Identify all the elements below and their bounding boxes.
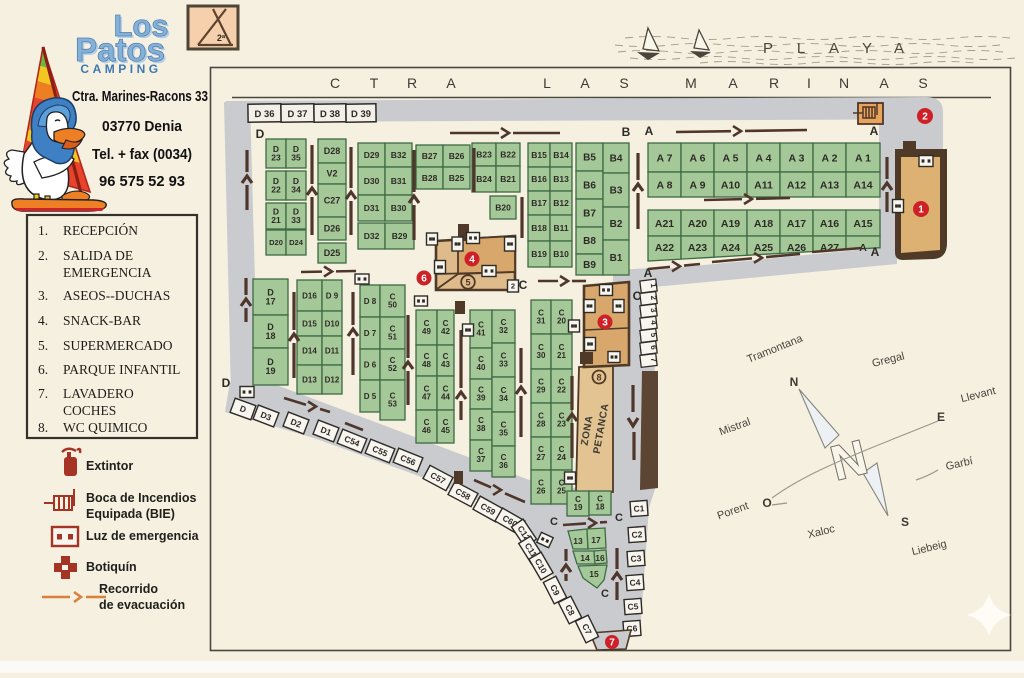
svg-text:B26: B26 (449, 151, 465, 161)
svg-text:34: 34 (499, 394, 508, 403)
svg-text:96 575 52 93: 96 575 52 93 (99, 173, 185, 190)
svg-text:B13: B13 (553, 174, 569, 184)
svg-text:33: 33 (291, 215, 301, 225)
svg-text:A21: A21 (655, 218, 674, 230)
svg-text:D30: D30 (364, 176, 380, 186)
svg-text:N: N (790, 375, 799, 389)
svg-text:A: A (829, 40, 839, 57)
svg-text:26: 26 (537, 487, 546, 496)
svg-text:A26: A26 (787, 242, 806, 254)
svg-text:SNACK-BAR: SNACK-BAR (63, 313, 141, 328)
svg-text:A24: A24 (721, 242, 740, 254)
svg-text:B20: B20 (495, 203, 511, 213)
svg-text:52: 52 (388, 364, 397, 373)
svg-text:C: C (519, 278, 528, 292)
svg-text:A22: A22 (655, 242, 674, 254)
svg-text:Botiquín: Botiquín (86, 560, 137, 574)
svg-text:36: 36 (499, 461, 508, 470)
svg-text:CAMPING: CAMPING (80, 62, 161, 76)
svg-text:D 37: D 37 (287, 109, 307, 120)
svg-text:A17: A17 (787, 218, 806, 230)
svg-text:15: 15 (589, 569, 599, 579)
svg-text:B1: B1 (610, 253, 623, 264)
svg-text:B7: B7 (583, 209, 596, 220)
svg-text:43: 43 (441, 360, 450, 369)
svg-text:B: B (622, 125, 631, 139)
svg-text:A 4: A 4 (756, 152, 772, 164)
svg-text:D31: D31 (364, 203, 380, 213)
svg-text:A: A (728, 75, 738, 91)
svg-text:COCHES: COCHES (63, 403, 116, 418)
svg-text:25: 25 (557, 487, 566, 496)
svg-text:20: 20 (557, 317, 566, 326)
svg-text:17: 17 (265, 296, 275, 306)
svg-text:B28: B28 (422, 173, 438, 183)
svg-text:D16: D16 (302, 291, 317, 300)
svg-text:51: 51 (388, 333, 397, 342)
svg-text:D25: D25 (324, 248, 341, 258)
svg-text:A 6: A 6 (690, 152, 706, 164)
svg-text:D32: D32 (364, 231, 380, 241)
svg-text:D10: D10 (325, 319, 340, 328)
svg-text:D24: D24 (289, 238, 304, 247)
svg-text:Boca de Incendios: Boca de Incendios (86, 491, 196, 505)
svg-text:D 6: D 6 (364, 360, 377, 369)
svg-text:B12: B12 (553, 198, 569, 208)
svg-text:N: N (839, 75, 849, 91)
svg-text:D 36: D 36 (254, 109, 274, 120)
svg-text:Tel. + fax (0034): Tel. + fax (0034) (92, 146, 192, 163)
svg-text:32: 32 (499, 326, 508, 335)
svg-text:30: 30 (537, 351, 546, 360)
svg-text:35: 35 (291, 152, 301, 162)
svg-text:A11: A11 (754, 179, 773, 191)
svg-text:D12: D12 (325, 375, 340, 384)
svg-text:45: 45 (441, 426, 450, 435)
svg-text:D26: D26 (324, 224, 341, 234)
svg-text:D15: D15 (302, 319, 317, 328)
svg-text:A20: A20 (688, 218, 707, 230)
svg-text:2.: 2. (38, 248, 48, 263)
svg-text:B15: B15 (531, 150, 547, 160)
svg-text:Equipada (BIE): Equipada (BIE) (86, 507, 175, 521)
svg-text:6.: 6. (38, 362, 48, 377)
svg-text:S: S (901, 515, 909, 529)
svg-text:2: 2 (511, 282, 515, 291)
svg-text:A12: A12 (787, 179, 806, 191)
svg-text:A25: A25 (754, 242, 773, 254)
svg-text:L: L (797, 40, 805, 57)
svg-text:B10: B10 (553, 249, 569, 259)
svg-text:C27: C27 (324, 196, 341, 206)
svg-text:40: 40 (477, 363, 486, 372)
svg-text:35: 35 (499, 429, 508, 438)
svg-text:C1: C1 (633, 503, 645, 514)
svg-text:EMERGENCIA: EMERGENCIA (63, 265, 152, 280)
svg-text:44: 44 (441, 393, 450, 402)
svg-text:de evacuación: de evacuación (99, 598, 185, 612)
svg-text:C: C (633, 289, 642, 303)
svg-text:B8: B8 (583, 236, 596, 247)
svg-text:33: 33 (499, 360, 508, 369)
svg-text:2ª: 2ª (217, 33, 226, 43)
svg-text:39: 39 (477, 394, 486, 403)
svg-text:6: 6 (421, 273, 427, 284)
svg-text:B16: B16 (531, 174, 547, 184)
svg-text:18: 18 (596, 503, 605, 512)
svg-text:C: C (601, 588, 609, 600)
svg-text:LAVADERO: LAVADERO (63, 386, 134, 401)
svg-text:D14: D14 (302, 346, 317, 355)
svg-text:S: S (619, 75, 628, 91)
svg-text:A18: A18 (754, 218, 773, 230)
svg-text:B9: B9 (583, 260, 596, 271)
svg-text:A14: A14 (853, 179, 872, 191)
svg-text:D13: D13 (302, 375, 317, 384)
svg-text:D 7: D 7 (364, 329, 377, 338)
svg-text:17: 17 (591, 535, 601, 545)
svg-text:A13: A13 (820, 179, 839, 191)
svg-text:B19: B19 (531, 249, 547, 259)
svg-text:22: 22 (557, 386, 566, 395)
svg-text:A: A (894, 40, 904, 57)
svg-text:5: 5 (465, 278, 470, 288)
svg-text:A: A (580, 75, 590, 91)
svg-text:Luz de emergencia: Luz de emergencia (86, 529, 200, 543)
svg-text:4.: 4. (38, 313, 48, 328)
svg-text:C4: C4 (629, 577, 641, 588)
svg-text:49: 49 (422, 327, 431, 336)
svg-text:A15: A15 (853, 218, 872, 230)
svg-text:23: 23 (557, 420, 566, 429)
svg-text:B14: B14 (553, 150, 569, 160)
svg-text:B11: B11 (553, 223, 568, 233)
svg-text:Y: Y (862, 40, 872, 57)
svg-text:C2: C2 (631, 529, 643, 540)
svg-text:7: 7 (609, 637, 615, 648)
svg-text:D 39: D 39 (351, 109, 371, 120)
svg-text:37: 37 (477, 455, 486, 464)
svg-text:8.: 8. (38, 420, 48, 435)
svg-text:47: 47 (422, 393, 431, 402)
svg-text:B23: B23 (476, 150, 492, 160)
svg-text:P: P (763, 40, 773, 57)
svg-text:41: 41 (477, 329, 486, 338)
svg-text:SALIDA DE: SALIDA DE (63, 248, 133, 263)
svg-text:D 5: D 5 (364, 392, 377, 401)
svg-text:A 5: A 5 (723, 152, 739, 164)
svg-text:D28: D28 (324, 146, 341, 156)
svg-text:4: 4 (469, 254, 475, 265)
svg-text:Ctra. Marines-Racons 33: Ctra. Marines-Racons 33 (72, 88, 208, 105)
svg-text:A 2: A 2 (822, 152, 838, 164)
svg-text:D 9: D 9 (326, 291, 339, 300)
svg-text:A: A (446, 75, 456, 91)
svg-text:A19: A19 (721, 218, 740, 230)
svg-text:ASEOS--DUCHAS: ASEOS--DUCHAS (63, 288, 170, 303)
svg-text:A10: A10 (721, 179, 740, 191)
svg-text:A 3: A 3 (789, 152, 805, 164)
svg-text:B21: B21 (500, 174, 516, 184)
svg-text:31: 31 (537, 317, 546, 326)
svg-text:B22: B22 (500, 150, 516, 160)
svg-text:48: 48 (422, 360, 431, 369)
svg-text:3.: 3. (38, 288, 48, 303)
svg-text:L: L (543, 75, 551, 91)
svg-text:B27: B27 (422, 151, 438, 161)
svg-text:5.: 5. (38, 338, 48, 353)
svg-text:B30: B30 (391, 203, 407, 213)
svg-text:B6: B6 (583, 181, 596, 192)
svg-text:D: D (222, 376, 231, 390)
svg-text:A 8: A 8 (657, 179, 673, 191)
svg-text:3: 3 (602, 317, 608, 328)
svg-text:B2: B2 (610, 219, 623, 230)
svg-text:B4: B4 (610, 154, 623, 165)
svg-text:C: C (550, 516, 558, 528)
svg-text:Recorrido: Recorrido (99, 582, 158, 596)
svg-text:R: R (407, 75, 417, 91)
svg-text:B24: B24 (476, 174, 492, 184)
svg-text:19: 19 (574, 503, 583, 512)
svg-text:21: 21 (271, 215, 281, 225)
svg-text:M: M (685, 75, 697, 91)
svg-text:A 1: A 1 (855, 152, 871, 164)
svg-text:WC QUIMICO: WC QUIMICO (63, 420, 148, 435)
svg-text:38: 38 (477, 424, 486, 433)
svg-text:16: 16 (595, 553, 605, 563)
svg-text:14: 14 (580, 553, 590, 563)
svg-text:D 8: D 8 (364, 297, 377, 306)
svg-text:34: 34 (291, 184, 301, 194)
svg-text:D: D (256, 127, 265, 141)
svg-text:03770 Denia: 03770 Denia (102, 118, 183, 135)
svg-text:C3: C3 (630, 553, 642, 564)
svg-text:2: 2 (922, 111, 928, 122)
svg-text:B32: B32 (391, 150, 407, 160)
svg-text:A: A (879, 75, 889, 91)
svg-text:A23: A23 (688, 242, 707, 254)
svg-text:7.: 7. (38, 386, 48, 401)
svg-text:A: A (871, 245, 880, 259)
svg-text:A: A (870, 124, 879, 138)
svg-text:23: 23 (271, 152, 281, 162)
svg-text:B5: B5 (583, 153, 596, 164)
svg-text:S: S (918, 75, 927, 91)
svg-text:C5: C5 (627, 601, 639, 612)
svg-text:B17: B17 (531, 198, 547, 208)
svg-text:53: 53 (388, 400, 397, 409)
svg-text:21: 21 (557, 351, 566, 360)
svg-text:O: O (762, 496, 771, 510)
svg-text:I: I (807, 75, 811, 91)
svg-text:T: T (370, 75, 379, 91)
svg-text:46: 46 (422, 426, 431, 435)
svg-text:42: 42 (441, 327, 450, 336)
svg-text:29: 29 (537, 386, 546, 395)
svg-text:SUPERMERCADO: SUPERMERCADO (63, 338, 173, 353)
svg-text:28: 28 (537, 420, 546, 429)
svg-text:C: C (330, 75, 340, 91)
svg-text:R: R (769, 75, 779, 91)
svg-text:V2: V2 (326, 169, 337, 179)
svg-text:8: 8 (596, 373, 601, 383)
svg-text:A 7: A 7 (657, 152, 673, 164)
svg-text:C: C (615, 512, 623, 524)
svg-text:D 38: D 38 (320, 109, 340, 120)
svg-text:B31: B31 (391, 176, 407, 186)
svg-text:B25: B25 (449, 173, 465, 183)
svg-text:24: 24 (557, 453, 566, 462)
svg-text:D29: D29 (364, 150, 380, 160)
svg-text:19: 19 (265, 366, 275, 376)
svg-text:B29: B29 (392, 231, 408, 241)
svg-text:Extintor: Extintor (86, 459, 133, 473)
svg-text:50: 50 (388, 301, 397, 310)
svg-text:D20: D20 (269, 238, 283, 247)
svg-text:PARQUE INFANTIL: PARQUE INFANTIL (63, 362, 180, 377)
svg-text:18: 18 (265, 331, 275, 341)
svg-text:B3: B3 (610, 186, 623, 197)
svg-text:13: 13 (573, 536, 583, 546)
svg-text:E: E (937, 410, 945, 424)
svg-text:D11: D11 (325, 346, 340, 355)
svg-text:B18: B18 (531, 223, 547, 233)
svg-text:1.: 1. (38, 223, 48, 238)
svg-text:1: 1 (918, 204, 924, 215)
svg-text:A: A (645, 124, 654, 138)
svg-text:A16: A16 (820, 218, 839, 230)
svg-text:RECEPCIÓN: RECEPCIÓN (63, 223, 138, 238)
svg-text:A 9: A 9 (690, 179, 706, 191)
svg-text:22: 22 (271, 184, 281, 194)
svg-text:27: 27 (537, 453, 546, 462)
